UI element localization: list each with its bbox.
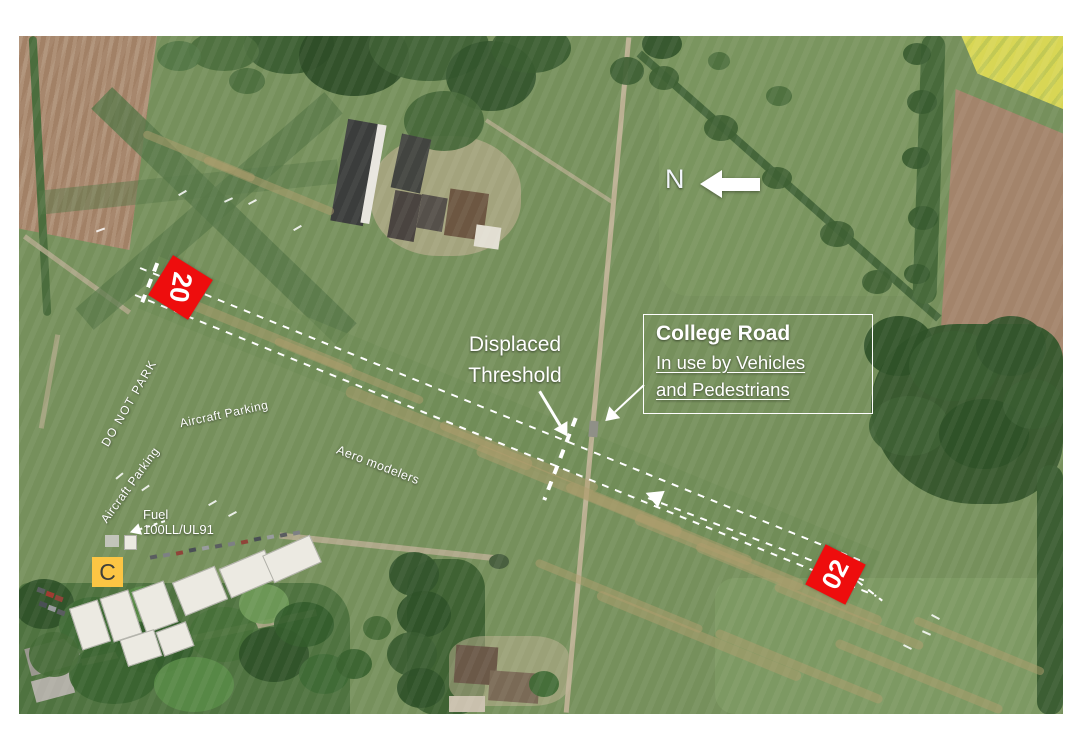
fuel-location-square <box>105 535 119 547</box>
north-label: N <box>665 164 685 195</box>
college-road-line2: and Pedestrians <box>656 376 860 403</box>
parked-car <box>175 550 183 555</box>
fuel-label: Fuel <box>143 507 168 522</box>
runway-20-label: 20 <box>163 270 199 305</box>
signal-square: C <box>92 557 123 587</box>
displaced-threshold-label: Displaced Threshold <box>440 329 590 391</box>
signal-square-letter: C <box>99 559 116 586</box>
college-road-title: College Road <box>656 319 860 349</box>
college-road-callout: College Road In use by Vehicles and Pede… <box>643 314 873 414</box>
airfield-aerial-photo: 20 02 Displaced Threshold College Road I… <box>19 36 1063 714</box>
road-gate <box>588 421 598 438</box>
displaced-line1: Displaced <box>440 329 590 360</box>
north-arrow-icon <box>700 170 762 198</box>
fuel-grade-label: 100LL/UL91 <box>143 522 214 537</box>
runway-02-label: 02 <box>815 555 856 595</box>
parked-car <box>240 539 248 544</box>
college-road-line1: In use by Vehicles <box>656 349 860 376</box>
displaced-line2: Threshold <box>440 360 590 391</box>
